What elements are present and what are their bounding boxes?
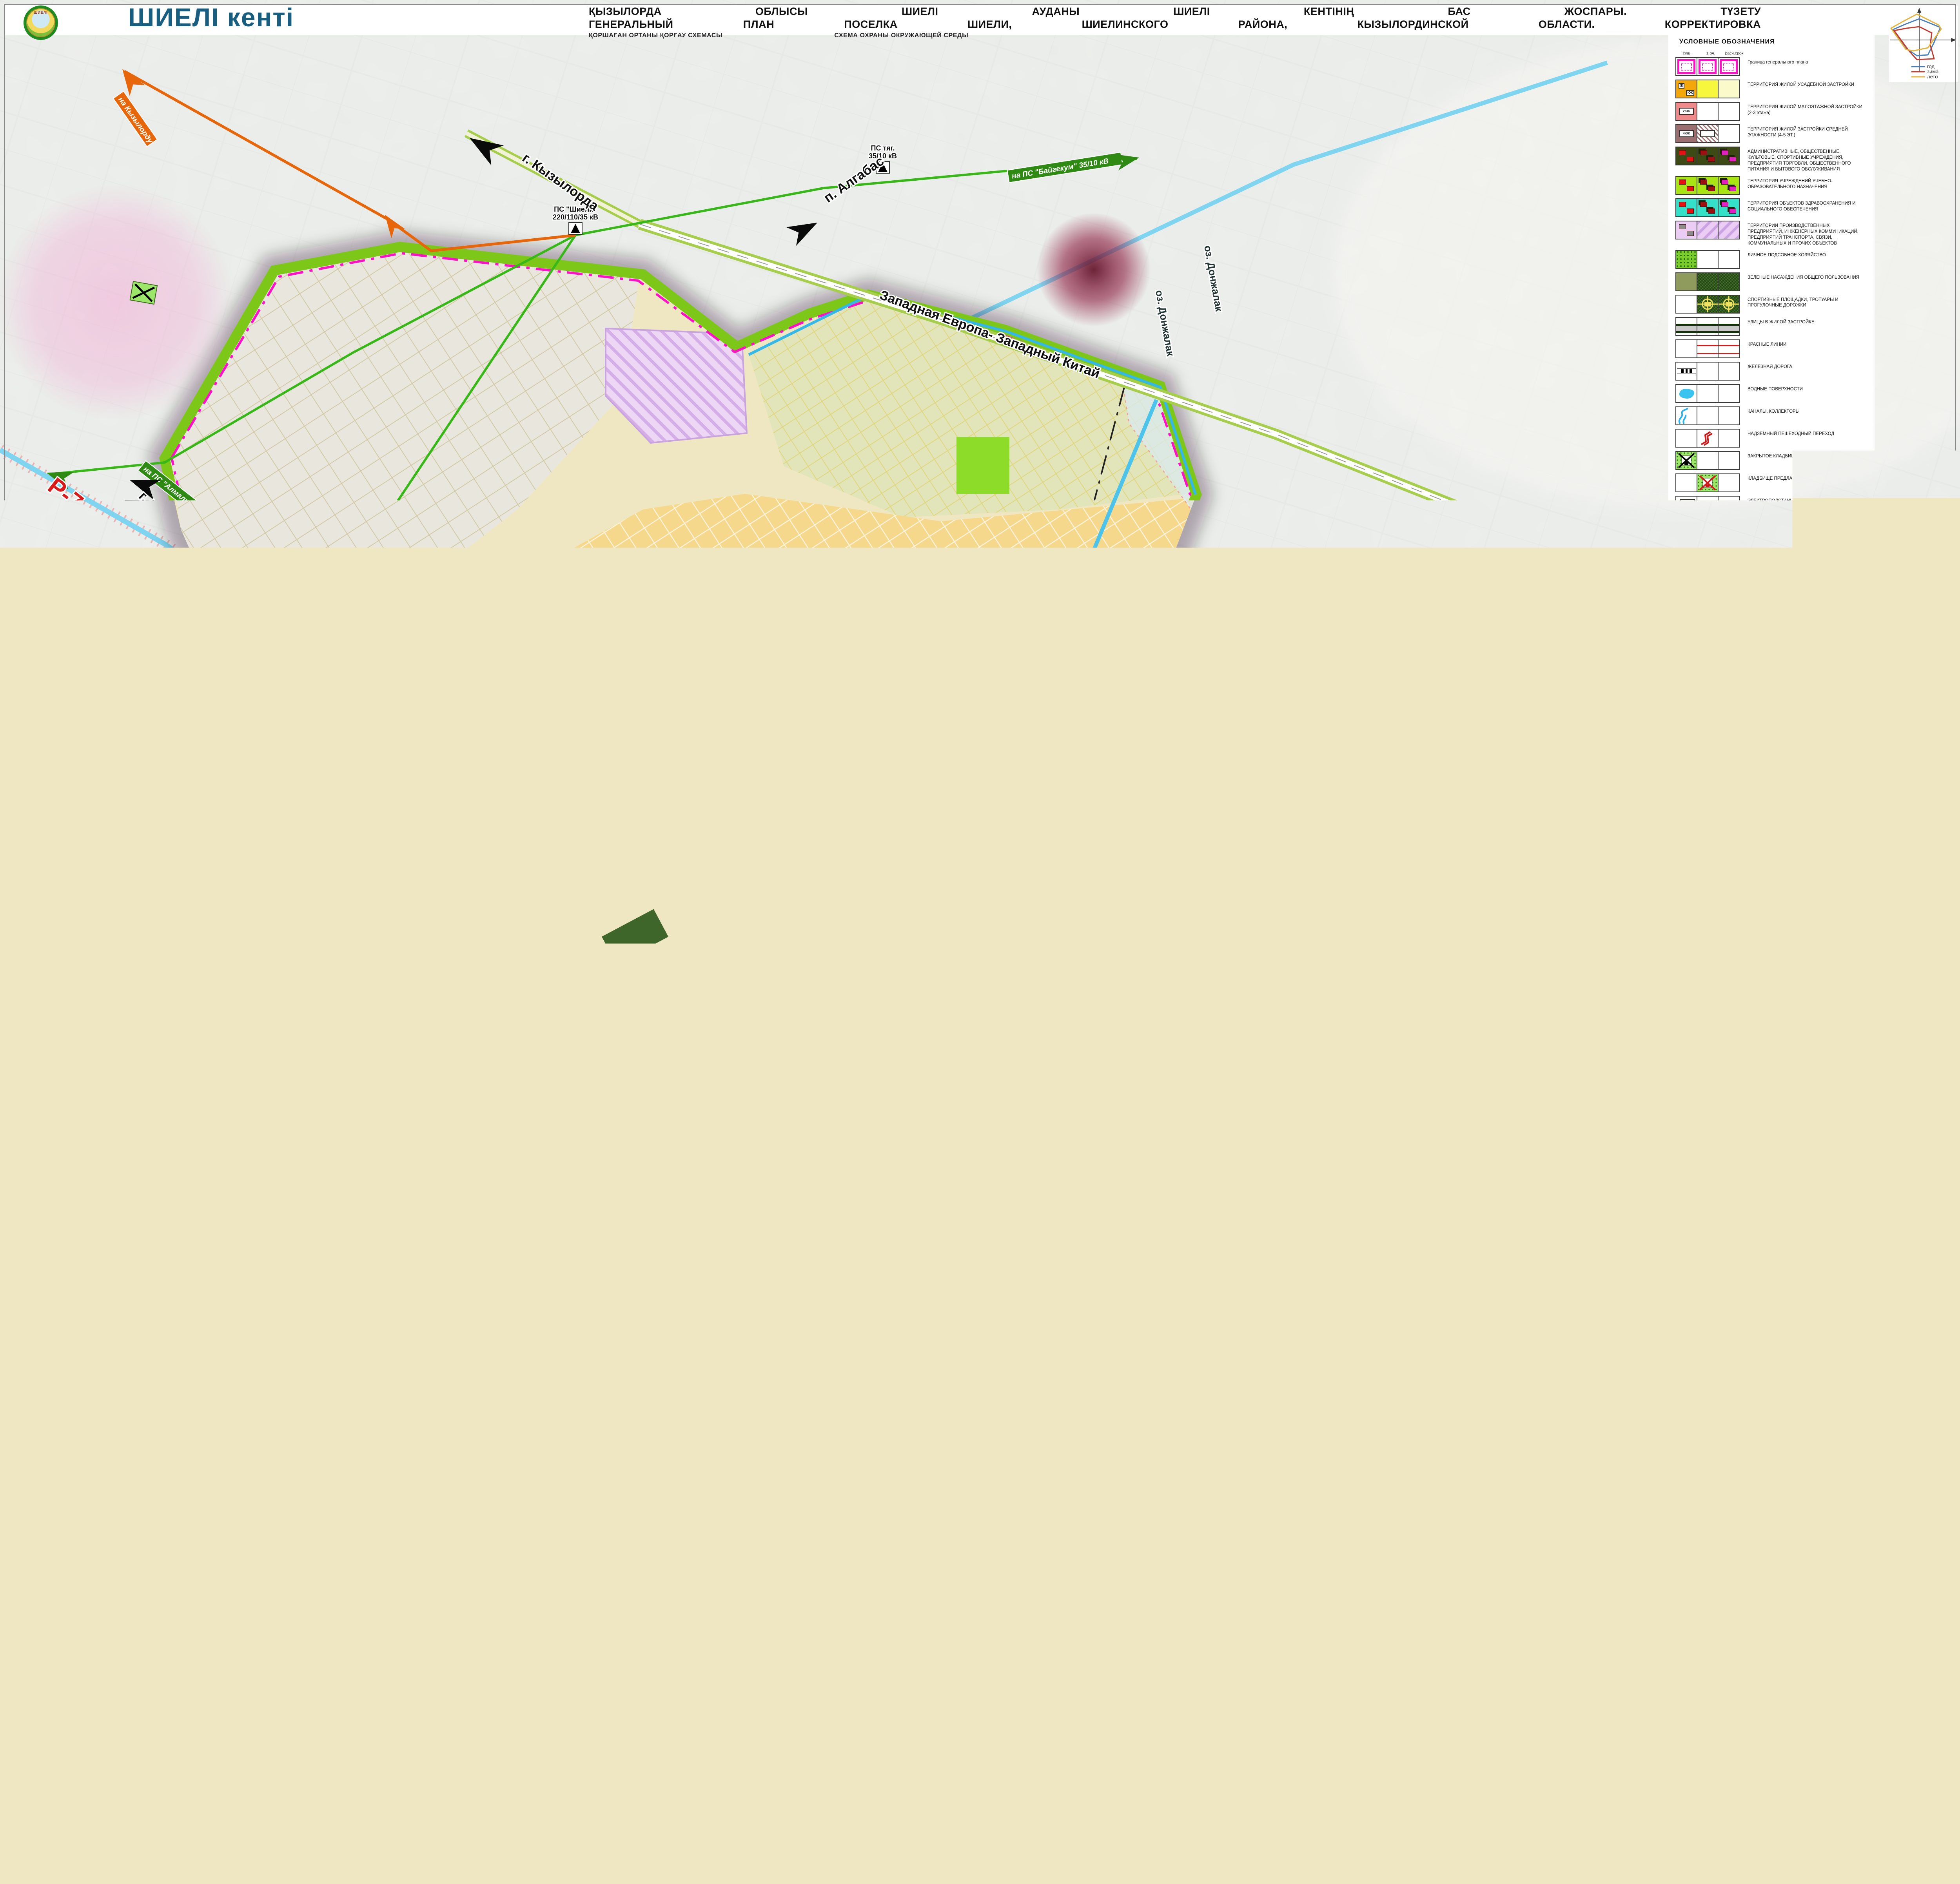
legend-item: 2ЮКТЕРРИТОРИЯ ЖИЛОЙ МАЛОЭТАЖНОЙ ЗАСТРОЙК… <box>1675 102 1875 121</box>
legend-swatch <box>1718 317 1740 336</box>
legend-item: СКОТОМОГИЛЬНИК <box>1675 742 1875 760</box>
legend-swatch <box>1697 873 1719 892</box>
legend-swatch <box>1718 783 1740 802</box>
legend-swatch <box>1697 339 1719 358</box>
signature-row: Генеральный директор Яковенко К.В. <box>1797 1833 1952 1839</box>
legend-swatch <box>1675 451 1697 470</box>
legend-item: ВОДООХРАННАЯ ЗОНА <box>1675 982 1875 1001</box>
legend-item-label: ЛИНИИ ЭЛЕКТРОПЕРЕДАЧИ 220 кВ <box>1748 563 1865 571</box>
legend-swatch: 35кВ <box>1675 607 1697 626</box>
legend-column-headers: сущ.1 оч.расч.срок <box>1675 51 1747 56</box>
legend-swatch <box>1718 959 1740 978</box>
legend-swatch <box>1718 362 1740 381</box>
legend-swatch <box>1718 937 1740 956</box>
legend-item: САНИТАРНО-ЗАЩИТНАЯ ЗОНА ОТ ПРОИЗВОДСТВЕН… <box>1675 828 1875 847</box>
legend-swatch <box>1697 742 1719 760</box>
legend-item-label: САНИТАРНО-ЗАЩИТНАЯ ЗОНА ОТ ЖЕЛЕЗНОЙ ДОРО… <box>1748 806 1865 820</box>
legend-item-label: САНИТАРНО-ЗАЩИТНАЯ ЗОНА ОТ СКОТОМОГИЛЬНИ… <box>1748 873 1865 887</box>
signature-row: Главный архитектор проектаБоранбай О.Т. <box>1797 1860 1952 1865</box>
legend-swatch <box>1718 272 1740 291</box>
legend-item-label: ПРИДОРОЖНАЯ ПОЛОСА <box>1748 915 1865 923</box>
institute-name: ТОО КАЗАХСТАНСКИЙ ПРОЕКТНО-ИССЛЕДОВАТЕЛЬ… <box>1813 1819 1952 1833</box>
svg-text:☣: ☣ <box>488 966 496 976</box>
legend-column-label: сущ. <box>1675 51 1699 56</box>
legend-swatch <box>1675 57 1697 76</box>
legend-swatch <box>1697 607 1719 626</box>
legend-item: 110кВЛИНИИ ЭЛЕКТРОПЕРЕДАЧИ 110 кВ <box>1675 585 1875 604</box>
legend-swatch <box>1675 198 1697 217</box>
legend-swatch <box>1697 540 1719 559</box>
legend-swatch: ☣ <box>1675 719 1697 738</box>
legend-swatch <box>1718 102 1740 121</box>
wind-rose-legend-label: лето <box>1927 74 1938 80</box>
legend-item-label: СПОРТИВНЫЕ ПЛОЩАДКИ, ТРОТУАРЫ И ПРОГУЛОЧ… <box>1748 295 1865 309</box>
legend-swatch <box>1718 295 1740 314</box>
legend-column-label: 1 оч. <box>1699 51 1722 56</box>
legend-swatch <box>1697 221 1719 239</box>
legend-swatch <box>1675 806 1697 825</box>
legend-swatch <box>1718 250 1740 269</box>
title-block: ҚЫЗЫЛОРДА ОБЛЫСЫ, ШИЕЛІ АУДАНЫ, ШИЕЛІ КЕ… <box>1792 1783 1957 1875</box>
scale-tick: 0 <box>20 1841 23 1847</box>
legend-swatch <box>1675 272 1697 291</box>
legend-item-label: АВТОМАТИЧЕСКАЯ ТЕЛЕФОННАЯ СТАНЦИЯ <box>1748 540 1865 549</box>
legend-item-label: РАЙОННЫЙ АКИМАТ <box>1748 630 1865 638</box>
legend-swatch <box>1675 362 1697 381</box>
legend-title: УСЛОВНЫЕ ОБОЗНАЧЕНИЯ <box>1679 38 1875 45</box>
legend-swatch <box>1718 80 1740 98</box>
role-name: Яковенко К.В. <box>1922 1833 1952 1839</box>
legend-swatch <box>1718 697 1740 716</box>
legend-item: ☣СИБИРЕЯЗВЕННЫЕ ЗАХОРОНЕНИЕ <box>1675 719 1875 738</box>
legend-swatch <box>1697 783 1719 802</box>
title-block-line-ru: ГЕНЕРАЛЬНЫЙ ПЛАН ПОСЕЛКА ШИЕЛИ, ШИЕЛИНСК… <box>1797 1796 1952 1805</box>
legend-item-label: САНИТАРНО-ЗАЩИТНАЯ ЗОНА ОТ ПРОИЗВОДСТВЕН… <box>1748 828 1865 842</box>
logo-text: ШИЕЛІ <box>26 11 55 15</box>
legend-swatch <box>1718 607 1740 626</box>
scale-bar: 050100200300400500М <box>22 1841 186 1854</box>
legend-swatch: ★ <box>1675 630 1697 649</box>
scale-bar-segments <box>22 1848 176 1853</box>
legend-swatch <box>1697 473 1719 492</box>
legend-item: ТЕРРИТОРИИ ПРОИЗВОДСТВЕННЫХ ПРЕДПРИЯТИЙ,… <box>1675 221 1875 247</box>
legend-swatch <box>1697 295 1719 314</box>
legend-swatch <box>1697 806 1719 825</box>
legend-item: НАДЗЕМНЫЙ ПЕШЕХОДНЫЙ ПЕРЕХОД <box>1675 429 1875 448</box>
legend-item-label: КЛАДБИЩЕ ПРЕДЛАГАЕМОЕ К ЗАКРЫТИЮ <box>1748 473 1865 482</box>
legend-item-label: Граница генерального плана <box>1748 57 1865 65</box>
legend-swatch <box>1675 850 1697 869</box>
legend-swatch <box>1718 198 1740 217</box>
legend-item: ВОДНЫЕ ПОВЕРХНОСТИ <box>1675 384 1875 403</box>
schema-subtitle-ru: СХЕМА ОХРАНЫ ОКРУЖАЮЩЕЙ СРЕДЫ <box>834 32 968 39</box>
legend-item-label: КРАСНЫЕ ЛИНИИ <box>1748 339 1865 348</box>
drawing-code: БЖ-10 <box>1938 1806 1952 1811</box>
legend-swatch <box>1718 429 1740 448</box>
legend-section-heading: ТЕРРИТОРИИ САНИТАРНО-ЗАЩИТНЫХ ЗОН <box>1675 771 1875 776</box>
legend-swatch <box>1718 147 1740 165</box>
legend-item-label: ТЕРРИТОРИИ ПРОИЗВОДСТВЕННЫХ ПРЕДПРИЯТИЙ,… <box>1748 221 1865 247</box>
legend-item: САНИТАРНО-ЗАЩИТНАЯ ЗОНА ОТ СИБИРЕЯЗВЕННО… <box>1675 850 1875 869</box>
legend-swatch <box>1675 518 1697 537</box>
legend-item-label: ЖЕЛЕЗНАЯ ДОРОГА <box>1748 362 1865 370</box>
legend-item: КРАСНЫЕ ЛИНИИ <box>1675 339 1875 358</box>
legend-item: КАНАЛЫ, КОЛЛЕКТОРЫ <box>1675 406 1875 425</box>
legend-item-label: ВОДООХРАННАЯ ПОЛОСА <box>1748 959 1865 968</box>
legend-swatch <box>1718 982 1740 1001</box>
legend-item: ЖЕЛЕЗНАЯ ДОРОГА <box>1675 362 1875 381</box>
legend-swatch <box>1675 295 1697 314</box>
signature-row: Директор институтаТемербаев И.К. <box>1797 1853 1952 1859</box>
page-title: ШИЕЛІ кенті <box>128 2 294 32</box>
legend-swatch <box>1697 496 1719 515</box>
legend-swatch <box>1675 339 1697 358</box>
legend-item: УЛИЦЫ В ЖИЛОЙ ЗАСТРОЙКЕ <box>1675 317 1875 336</box>
plan-title-kz: ҚЫЗЫЛОРДА ОБЛЫСЫ ШИЕЛІ АУДАНЫ ШИЕЛІ КЕНТ… <box>589 6 1761 17</box>
signature-row: АрхитекторОкас Е.Е. <box>1797 1866 1952 1871</box>
legend-swatch <box>1718 451 1740 470</box>
legend-swatch <box>1675 982 1697 1001</box>
legend-swatch <box>1675 221 1697 239</box>
legend-column-label: расч.срок <box>1722 51 1746 56</box>
legend-swatch <box>1718 630 1740 649</box>
legend-swatch <box>1697 585 1719 604</box>
legend-item: ПРИДОРОЖНАЯ ПОЛОСА <box>1675 915 1875 934</box>
legend-swatch <box>1718 742 1740 760</box>
legend-item: АДМИНИСТРАТИВНЫЕ, ОБЩЕСТВЕННЫЕ, КУЛЬТОВЫ… <box>1675 147 1875 172</box>
legend-item: ЗАКРЫТОЕ КЛАДБИЩЕ <box>1675 451 1875 470</box>
legend-swatch <box>1718 496 1740 515</box>
legend-item-label: ПЛОЩАДКА ВОДОПРОВОДНЫХ ОЧИСТНЫХ СООРУЖЕН… <box>1748 697 1865 711</box>
legend-swatch <box>1718 124 1740 143</box>
legend-item-label: НАДЗЕМНЫЙ ПЕШЕХОДНЫЙ ПЕРЕХОД <box>1748 429 1865 437</box>
legend-item: 4ЮК ТЕРРИТОРИЯ ЖИЛОЙ ЗАСТРОЙКИ СРЕДНЕЙ Э… <box>1675 124 1875 143</box>
wind-rose-diagram: годзималето <box>1889 5 1958 82</box>
legend-swatch <box>1697 828 1719 847</box>
legend-item: ЗЕЛЕНЫЕ НАСАЖДЕНИЯ ОБЩЕГО ПОЛЬЗОВАНИЯ <box>1675 272 1875 291</box>
legend-item-label: ЛИЧНОЕ ПОДСОБНОЕ ХОЗЯЙСТВО <box>1748 250 1865 258</box>
legend-swatch <box>1718 915 1740 934</box>
legend-swatch <box>1718 518 1740 537</box>
legend-swatch <box>1697 563 1719 582</box>
legend-swatch: 4ЮК <box>1675 124 1697 143</box>
legend-swatch <box>1697 124 1719 143</box>
legend-swatch <box>1697 250 1719 269</box>
legend-swatch <box>1718 339 1740 358</box>
legend-item: ВОДООХРАННАЯ ПОЛОСА <box>1675 959 1875 978</box>
legend-swatch <box>1697 675 1719 693</box>
legend-item: САНИТАРНО-ЗАЩИТНАЯ ЗОНА ОТ СКОТОМОГИЛЬНИ… <box>1675 873 1875 892</box>
drawing-code: ГП-10 <box>1939 1812 1952 1817</box>
legend-swatch <box>1697 451 1719 470</box>
legend-swatch <box>1675 406 1697 425</box>
legend-item: 35кВЛИНИИ ЭЛЕКТРОПЕРЕДАЧИ 35 кВ <box>1675 607 1875 626</box>
legend-swatch <box>1697 850 1719 869</box>
legend-swatch <box>1675 384 1697 403</box>
legend-swatch <box>1718 675 1740 693</box>
legend-item-label: ТЕРРИТОРИЯ ЖИЛОЙ ЗАСТРОЙКИ СРЕДНЕЙ ЭТАЖН… <box>1748 124 1865 138</box>
legend-swatch <box>1697 406 1719 425</box>
legend-item: 220кВЛИНИИ ЭЛЕКТРОПЕРЕДАЧИ 220 кВ <box>1675 563 1875 582</box>
legend-swatch <box>1697 652 1719 671</box>
legend-item-label: ЗЕЛЕНЫЕ НАСАЖДЕНИЯ ОБЩЕГО ПОЛЬЗОВАНИЯ <box>1748 272 1865 281</box>
legend-swatch <box>1718 473 1740 492</box>
legend-swatch <box>1675 496 1697 515</box>
legend-item: КЛАДБИЩЕ ПРЕДЛАГАЕМОЕ К ЗАКРЫТИЮ <box>1675 473 1875 492</box>
legend-swatch <box>1675 540 1697 559</box>
legend-swatch <box>1718 384 1740 403</box>
legend-item-label: ТЕРРИТОРИЯ ЖИЛОЙ МАЛОЭТАЖНОЙ ЗАСТРОЙКИ (… <box>1748 102 1865 116</box>
institute-emblem: К <box>1797 1820 1809 1831</box>
legend-swatch <box>1697 384 1719 403</box>
legend-section-heading: ТЕРРИТОРИИ ЗОН САНИТАРНОЙ ОХРАНЫ <box>1675 902 1875 908</box>
legend-swatch <box>1697 959 1719 978</box>
legend-item: СПОРТИВНЫЕ ПЛОЩАДКИ, ТРОТУАРЫ И ПРОГУЛОЧ… <box>1675 295 1875 314</box>
legend-item-label: ПАМЯТНИК <box>1748 675 1865 683</box>
legend-swatch <box>1675 250 1697 269</box>
legend-item-label: ЭЛЕКТРОПОДСТАНЦИЯ <box>1748 496 1865 504</box>
legend-item: ★РАЙОННЫЙ АКИМАТ <box>1675 630 1875 649</box>
legend-item-label: ВОДНЫЕ ПОВЕРХНОСТИ <box>1748 384 1865 392</box>
legend-item-label: ТЕРРИТОРИЯ ОБЪЕКТОВ ЗДРАВООХРАНЕНИЯ И СО… <box>1748 198 1865 212</box>
legend-item-label: КАНАЛЫ, КОЛЛЕКТОРЫ <box>1748 406 1865 415</box>
header: ШИЕЛІ ШИЕЛІ кенті ҚЫЗЫЛОРДА ОБЛЫСЫ ШИЕЛІ… <box>5 5 1955 35</box>
legend-item: САНИТАРНО-ЗАЩИТНАЯ ЗОНА ОТ ЖЕЛЕЗНОЙ ДОРО… <box>1675 806 1875 825</box>
legend-item-label: САНИТАРНО-ЗАЩИТНАЯ ЗОНА ОТ СИБИРЕЯЗВЕННО… <box>1748 850 1865 865</box>
legend-swatch <box>1718 585 1740 604</box>
scale-tick: 400 <box>139 1841 148 1847</box>
legend-swatch <box>1697 147 1719 165</box>
legend-item: САНИТАРНО-ЗАЩИТНАЯ ЗОНА ОТ КЛАДБИЩА <box>1675 783 1875 802</box>
legend-swatch <box>1718 828 1740 847</box>
legend-item-label: ЛИНИИ ЭЛЕКТРОПЕРЕДАЧИ 35 кВ <box>1748 607 1865 616</box>
legend-swatch <box>1675 937 1697 956</box>
legend-swatch <box>1697 57 1719 76</box>
general-plan-sheet: { "header": { "logo_text": "ШИЕЛІ", "big… <box>0 0 1960 1879</box>
legend-item: ЗОНА ОХРАНЫ ОТ ЛИНИЙ ЭЛЕКТРОПЕРЕДАЧИ <box>1675 937 1875 956</box>
legend-item: ЖЕЛЕЗНОДОРОЖНЫЙ ВОКЗАЛ <box>1675 652 1875 671</box>
legend-swatch: 110кВ <box>1675 585 1697 604</box>
legend-swatch <box>1675 828 1697 847</box>
legend-swatch <box>1697 317 1719 336</box>
legend-swatch <box>1675 652 1697 671</box>
drawing-code-row: ҚОРШАҒАН ОРТАНЫ ҚОРҒАУ СХЕМАСЫБЖ-10 <box>1797 1806 1952 1811</box>
legend-swatch <box>1697 982 1719 1001</box>
legend-swatch <box>1697 272 1719 291</box>
legend-swatch <box>1718 406 1740 425</box>
legend-swatch <box>1697 518 1719 537</box>
legend-item: ЭЛЕКТРОПОДСТАНЦИЯ <box>1675 496 1875 515</box>
legend-item: ЖЮКТЕРРИТОРИЯ ЖИЛОЙ УСАДЕБНОЙ ЗАСТРОЙКИ <box>1675 80 1875 98</box>
scale-tick: 50 <box>34 1841 40 1847</box>
legend-item: ЛИЧНОЕ ПОДСОБНОЕ ХОЗЯЙСТВО <box>1675 250 1875 269</box>
legend-swatch <box>1697 176 1719 195</box>
legend-swatch <box>1697 937 1719 956</box>
scale-tick: 200 <box>78 1841 87 1847</box>
legend-swatch <box>1675 317 1697 336</box>
legend-swatch <box>1697 630 1719 649</box>
city-year: АЛМАТЫ 2024 <box>1797 1879 1952 1884</box>
legend-swatch <box>1697 915 1719 934</box>
scale-subtitle: В 1 САНТИМЕТРЕ 50 МЕТРОВ <box>25 1832 186 1839</box>
legend-item-label: АДМИНИСТРАТИВНЫЕ, ОБЩЕСТВЕННЫЕ, КУЛЬТОВЫ… <box>1748 147 1865 172</box>
legend-item-label: ТРАНСФОРМАТОРНАЯ ПОДСТАНЦИЯ <box>1748 518 1865 526</box>
legend-item-label: СКОТОМОГИЛЬНИК <box>1748 742 1865 750</box>
legend-panel: УСЛОВНЫЕ ОБОЗНАЧЕНИЯ сущ.1 оч.расч.срок … <box>1668 35 1875 1141</box>
legend-item-label: ЛИНИИ ЭЛЕКТРОПЕРЕДАЧИ 110 кВ <box>1748 585 1865 593</box>
legend-swatch <box>1718 850 1740 869</box>
institute-row: К ТОО КАЗАХСТАНСКИЙ ПРОЕКТНО-ИССЛЕДОВАТЕ… <box>1797 1819 1952 1833</box>
scale-tick: 300 <box>109 1841 118 1847</box>
legend-swatch <box>1718 719 1740 738</box>
legend-swatch <box>1675 147 1697 165</box>
legend-swatch <box>1718 540 1740 559</box>
scale-block: МАСШТАБ 1:5000 В 1 САНТИМЕТРЕ 50 МЕТРОВ … <box>22 1819 186 1854</box>
drawing-code-row: СХЕМА ОХРАНЫ ОКРУЖАЮЩЕЙ СРЕДЫГП-10 <box>1797 1812 1952 1817</box>
legend-swatch: 220кВ <box>1675 563 1697 582</box>
legend-swatch: ВОС <box>1675 697 1697 716</box>
legend-item-label: УЛИЦЫ В ЖИЛОЙ ЗАСТРОЙКЕ <box>1748 317 1865 325</box>
legend-swatch <box>1675 742 1697 760</box>
scale-title: МАСШТАБ 1:5000 <box>22 1819 186 1831</box>
legend-swatch <box>1675 675 1697 693</box>
legend-item: ТЕРРИТОРИЯ УЧРЕЖДЕНИЙ УЧЕБНО-ОБРАЗОВАТЕЛ… <box>1675 176 1875 195</box>
legend-swatch <box>1718 652 1740 671</box>
svg-text:★: ★ <box>800 875 816 894</box>
legend-swatch <box>1697 102 1719 121</box>
scale-tick: 100 <box>47 1841 56 1847</box>
legend-swatch <box>1718 57 1740 76</box>
legend-item: Граница генерального плана <box>1675 57 1875 76</box>
legend-swatch <box>1675 915 1697 934</box>
legend-item: ПАМЯТНИК <box>1675 675 1875 693</box>
legend-item: ВОСПЛОЩАДКА ВОДОПРОВОДНЫХ ОЧИСТНЫХ СООРУ… <box>1675 697 1875 716</box>
schema-subtitle-kz: ҚОРШАҒАН ОРТАНЫ ҚОРҒАУ СХЕМАСЫ <box>589 32 722 39</box>
legend-item: ТЕРРИТОРИЯ ОБЪЕКТОВ ЗДРАВООХРАНЕНИЯ И СО… <box>1675 198 1875 217</box>
legend-swatch <box>1675 429 1697 448</box>
legend-item-label: ЗАКРЫТОЕ КЛАДБИЩЕ <box>1748 451 1865 459</box>
legend-swatch <box>1718 221 1740 239</box>
dotted-leader <box>1849 1837 1921 1838</box>
role-label: Генеральный директор <box>1797 1833 1847 1839</box>
scale-tick: 500 <box>170 1841 179 1847</box>
legend-swatch: ЖЮК <box>1675 80 1697 98</box>
legend-swatch <box>1697 80 1719 98</box>
title-block-line-kz: ҚЫЗЫЛОРДА ОБЛЫСЫ, ШИЕЛІ АУДАНЫ, ШИЕЛІ КЕ… <box>1797 1786 1952 1796</box>
legend-swatch <box>1718 806 1740 825</box>
legend-swatch <box>1718 176 1740 195</box>
legend-swatch <box>1697 719 1719 738</box>
legend-swatch <box>1675 783 1697 802</box>
institute-brand: KAZGIPROGRAD 1 <box>1797 1840 1952 1853</box>
legend-swatch <box>1697 198 1719 217</box>
legend-item-label: ЖЕЛЕЗНОДОРОЖНЫЙ ВОКЗАЛ <box>1748 652 1865 660</box>
legend-swatch <box>1697 429 1719 448</box>
plan-title-ru: ГЕНЕРАЛЬНЫЙ ПЛАН ПОСЕЛКА ШИЕЛИ, ШИЕЛИНСК… <box>589 19 1761 30</box>
legend-item-label: ЗОНА ОХРАНЫ ОТ ЛИНИЙ ЭЛЕКТРОПЕРЕДАЧИ <box>1748 937 1865 945</box>
map-canvas: ☣ ☣ ★ ПС "Шиели"220/110/35 кВПС тяг.35/1… <box>0 0 1960 1879</box>
legend-item: АВТОМАТИЧЕСКАЯ ТЕЛЕФОННАЯ СТАНЦИЯ <box>1675 540 1875 559</box>
scale-unit: М <box>178 1848 182 1854</box>
legend-swatch <box>1718 563 1740 582</box>
legend-swatch <box>1675 176 1697 195</box>
legend-item: ТРАНСФОРМАТОРНАЯ ПОДСТАНЦИЯ <box>1675 518 1875 537</box>
legend-swatch <box>1675 873 1697 892</box>
signature-row: Главный специалист - экологЗаридзе Ж.Г. <box>1797 1872 1952 1878</box>
legend-item-label: ТЕРРИТОРИЯ УЧРЕЖДЕНИЙ УЧЕБНО-ОБРАЗОВАТЕЛ… <box>1748 176 1865 190</box>
svg-text:☣: ☣ <box>721 959 729 968</box>
legend-swatch <box>1675 473 1697 492</box>
legend-item-label: ТЕРРИТОРИЯ ЖИЛОЙ УСАДЕБНОЙ ЗАСТРОЙКИ <box>1748 80 1865 88</box>
legend-swatch <box>1697 697 1719 716</box>
legend-swatch <box>1675 959 1697 978</box>
plan-titles: ҚЫЗЫЛОРДА ОБЛЫСЫ ШИЕЛІ АУДАНЫ ШИЕЛІ КЕНТ… <box>589 6 1761 39</box>
legend-item-label: СИБИРЕЯЗВЕННЫЕ ЗАХОРОНЕНИЕ <box>1748 719 1865 727</box>
legend-item-label: САНИТАРНО-ЗАЩИТНАЯ ЗОНА ОТ КЛАДБИЩА <box>1748 783 1865 792</box>
legend-swatch: 2ЮК <box>1675 102 1697 121</box>
settlement-emblem-logo: ШИЕЛІ <box>24 5 58 40</box>
legend-swatch <box>1697 362 1719 381</box>
legend-swatch <box>1718 873 1740 892</box>
legend-item-label: ВОДООХРАННАЯ ЗОНА <box>1748 982 1865 990</box>
